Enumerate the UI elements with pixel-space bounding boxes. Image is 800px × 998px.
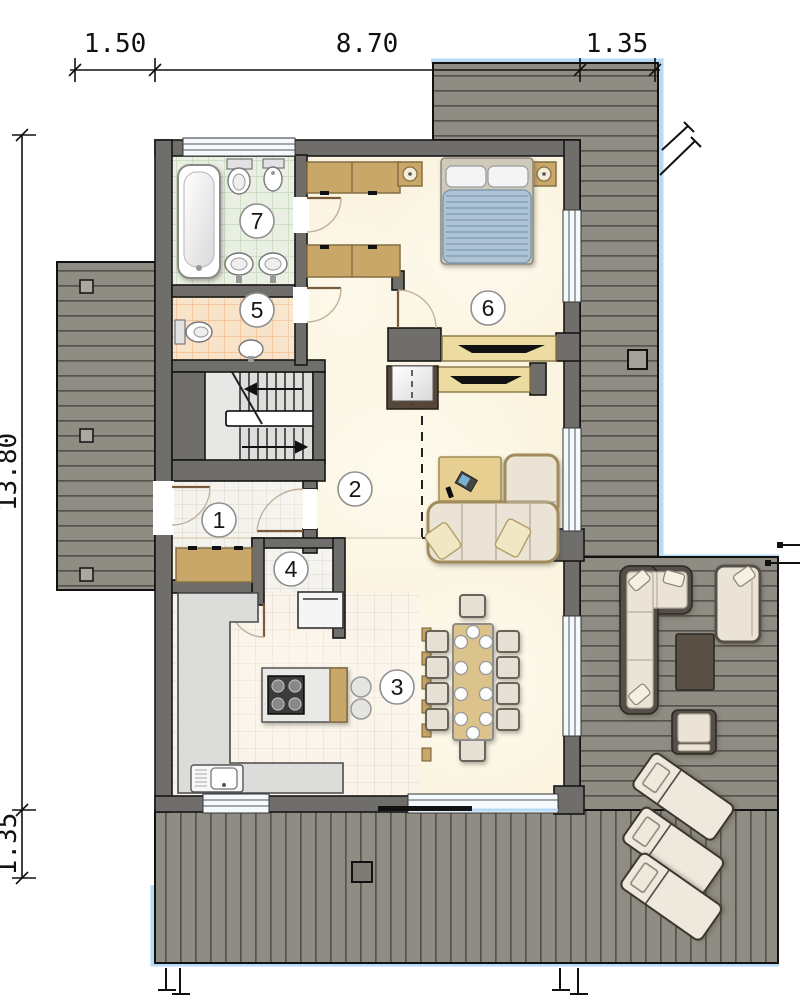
outdoor-chaise-icon: [716, 565, 760, 642]
dim-top-3: 1.35: [586, 29, 649, 59]
room-badge-7: 7: [240, 204, 274, 238]
chair-icon: [426, 709, 448, 730]
room-badge-4: 4: [274, 552, 308, 586]
fridge-icon: [298, 592, 343, 628]
room-badge-1: 1: [202, 503, 236, 537]
sideboard-icon: [442, 336, 556, 361]
dim-top-2: 8.70: [336, 29, 399, 59]
room-number: 6: [482, 295, 495, 321]
toilet-icon: [227, 159, 252, 194]
staircase-icon: [205, 372, 318, 460]
chair-icon: [426, 683, 448, 704]
chair-icon: [426, 657, 448, 678]
pillow: [446, 166, 486, 187]
kitchen-sink-icon: [191, 765, 243, 792]
wardrobe-icon: [176, 546, 252, 582]
coffee-table-icon: [676, 634, 714, 690]
dining-window: [563, 616, 581, 736]
deck-post-icon: [628, 350, 647, 369]
sideboard-icon: [437, 367, 530, 392]
chair-icon: [497, 709, 519, 730]
chair-icon: [460, 739, 485, 761]
entry-furniture: [176, 546, 252, 582]
bathroom-window: [183, 138, 295, 156]
dim-left-2: 1.35: [0, 813, 23, 876]
foundation-post-icon: [552, 968, 588, 994]
outdoor-armchair-icon: [672, 710, 716, 754]
deck-post-icon: [80, 568, 93, 581]
chair-icon: [497, 657, 519, 678]
living-room-furniture: [424, 455, 558, 562]
floor-plan-page: 1.50 8.70 1.35 13.80 1.35: [0, 0, 800, 998]
double-bed-icon: [441, 158, 533, 264]
fireplace-icon: [387, 366, 438, 409]
room-number: 3: [391, 674, 404, 700]
island-wood-end: [330, 668, 347, 722]
kitchen-window: [203, 794, 269, 813]
edge-dimension-ticks: [765, 542, 800, 566]
living-room-window: [563, 428, 581, 531]
bar-stool-icon: [351, 699, 371, 719]
room-number: 7: [251, 208, 264, 234]
bathtub-icon: [178, 165, 220, 278]
chair-icon: [497, 683, 519, 704]
room-badge-3: 3: [380, 670, 414, 704]
room-number: 5: [251, 297, 264, 323]
nightstand-lamp-icon: [532, 162, 556, 186]
room-number: 2: [349, 476, 362, 502]
room-number: 1: [213, 507, 226, 533]
toilet-icon: [175, 320, 212, 344]
nightstand-lamp-icon: [398, 162, 422, 186]
room-badge-5: 5: [240, 293, 274, 327]
bar-stool-icon: [351, 677, 371, 697]
stair-railing: [226, 411, 318, 426]
wall-west: [155, 140, 172, 812]
pillow: [488, 166, 528, 187]
chair-icon: [497, 631, 519, 652]
bidet-icon: [263, 159, 284, 191]
chair-icon: [426, 631, 448, 652]
foundation-post-icon: [158, 968, 190, 994]
wardrobe-icon: [307, 162, 400, 195]
left-porch-deck: [57, 262, 155, 590]
room-badge-6: 6: [471, 291, 505, 325]
dim-top-1: 1.50: [84, 29, 147, 59]
wardrobe-icon: [307, 245, 400, 277]
deck-post-icon: [80, 429, 93, 442]
room-number: 4: [285, 556, 298, 582]
deck-post-icon: [352, 862, 372, 882]
desk-icon: [439, 457, 501, 501]
slope-marker-icon: [660, 122, 701, 175]
kitchen-island-icon: [262, 668, 347, 722]
dim-left-1: 13.80: [0, 433, 23, 511]
patio-door-sill: [378, 806, 472, 811]
chair-icon: [460, 595, 485, 617]
bedroom-window: [563, 210, 581, 302]
cooktop-icon: [268, 676, 304, 714]
floor-plan-canvas: 1.50 8.70 1.35 13.80 1.35: [0, 0, 800, 998]
room-badge-2: 2: [338, 472, 372, 506]
deck-post-icon: [80, 280, 93, 293]
